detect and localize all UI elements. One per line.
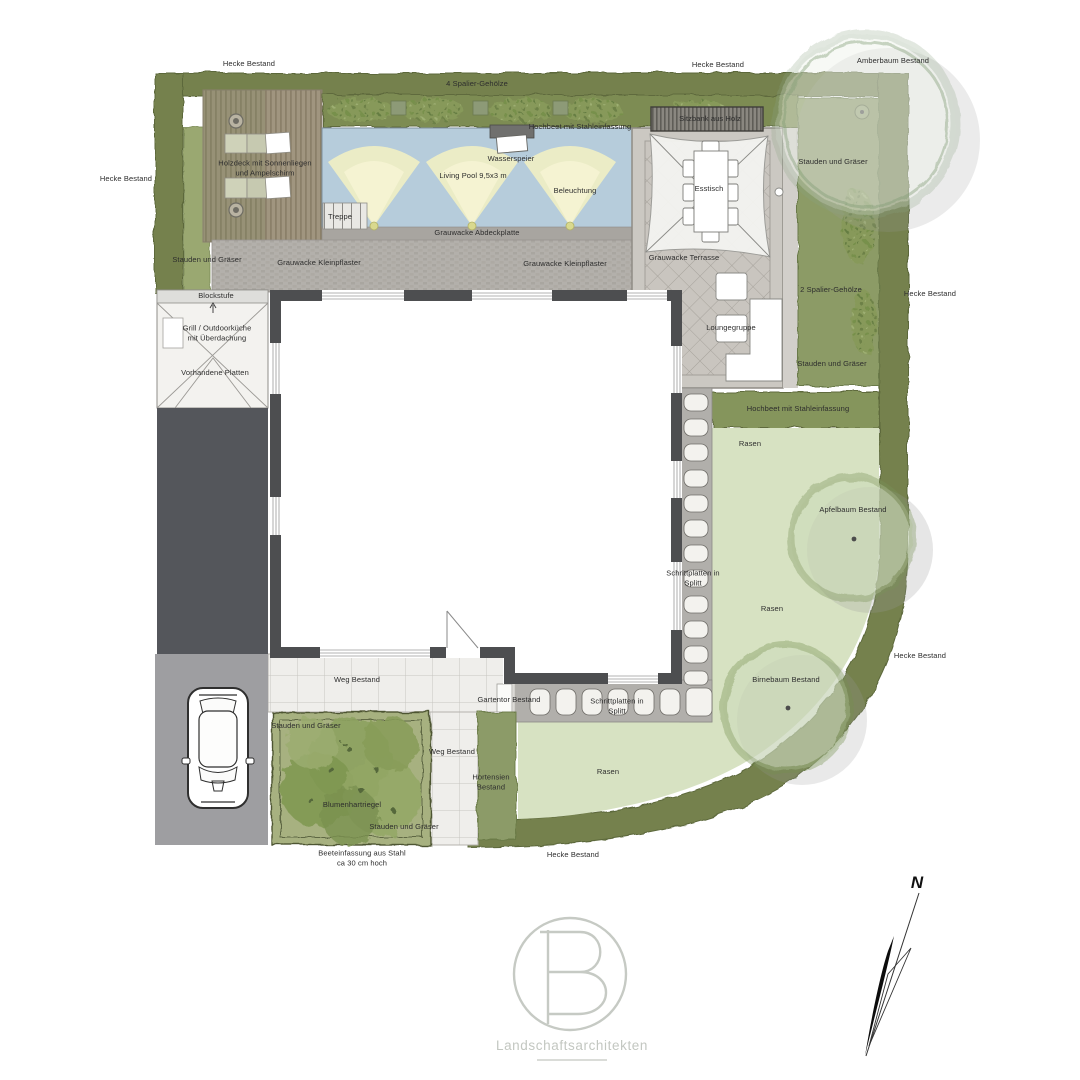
deck-shade-overlay bbox=[203, 90, 265, 242]
pool-coping bbox=[322, 227, 632, 241]
hedge-left bbox=[155, 73, 183, 293]
wood-deck bbox=[203, 90, 322, 242]
pool-light-icon bbox=[566, 222, 574, 230]
brand-logo: Landschaftsarchitekten bbox=[496, 918, 648, 1060]
bed-post bbox=[391, 101, 406, 115]
trunk-dot bbox=[852, 537, 857, 542]
logo-b-icon bbox=[540, 930, 606, 1024]
car-icon bbox=[182, 688, 254, 808]
site-plan-drawing: N Landschaftsarchitekten bbox=[0, 0, 1080, 1080]
garden-gate-icon bbox=[497, 684, 512, 712]
grill-outdoor-kitchen bbox=[157, 290, 268, 408]
kitchen-counter bbox=[163, 318, 183, 348]
house bbox=[270, 290, 682, 684]
pool-light-icon bbox=[370, 222, 378, 230]
living-pool bbox=[322, 125, 632, 241]
garden-site-plan: N Landschaftsarchitekten Hecke Bestand H… bbox=[0, 0, 1080, 1080]
wood-bench bbox=[651, 107, 763, 131]
pavers-strip bbox=[212, 240, 632, 292]
pear-tree bbox=[723, 645, 867, 785]
trunk-dot bbox=[786, 706, 791, 711]
pool-light-beams bbox=[328, 146, 616, 230]
bed-post bbox=[473, 101, 488, 115]
bed-post bbox=[553, 101, 568, 115]
block-step bbox=[157, 290, 268, 303]
dining-table bbox=[694, 151, 728, 232]
flower-bed bbox=[272, 712, 430, 845]
hydrangea-bed bbox=[478, 712, 516, 840]
terrace-post-icon bbox=[775, 188, 783, 196]
north-arrow: N bbox=[865, 873, 924, 1056]
pool-steps bbox=[323, 203, 367, 229]
north-label: N bbox=[911, 873, 924, 892]
raised-bed-right bbox=[712, 392, 879, 428]
driveway bbox=[157, 408, 268, 654]
pool-light-icon bbox=[468, 222, 476, 230]
logo-wordmark: Landschaftsarchitekten bbox=[496, 1038, 648, 1053]
